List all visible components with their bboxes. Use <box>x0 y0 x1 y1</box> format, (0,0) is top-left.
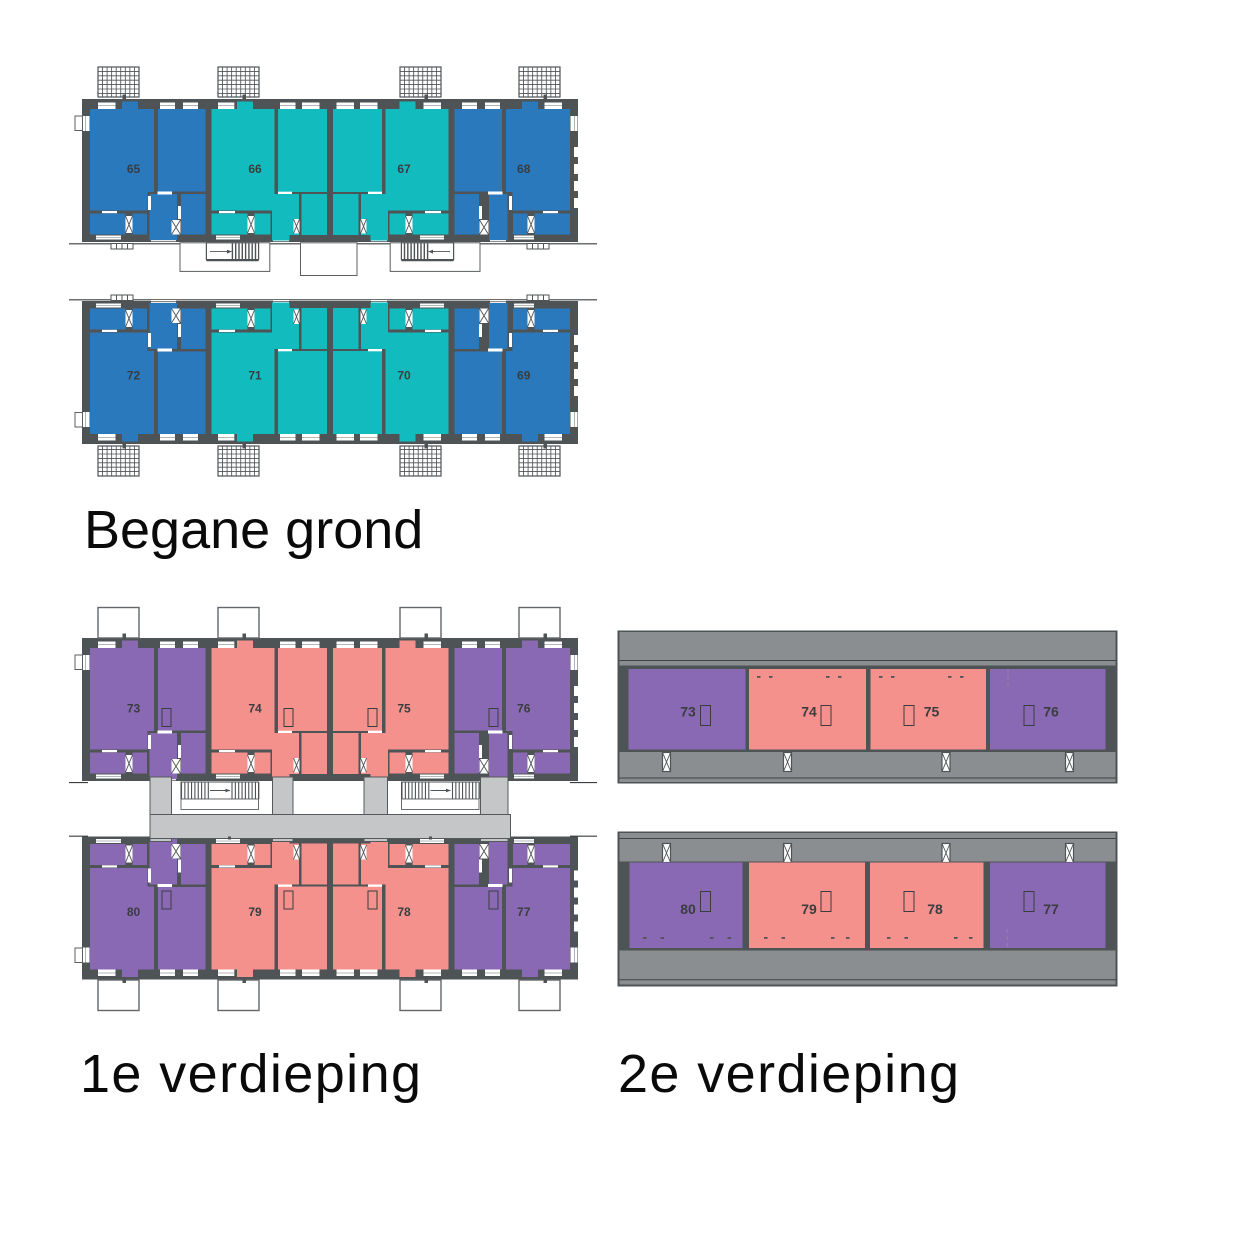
svg-text:72: 72 <box>127 369 141 383</box>
svg-text:1e verdieping: 1e verdieping <box>80 1044 422 1104</box>
svg-text:68: 68 <box>517 162 531 176</box>
svg-text:75: 75 <box>924 704 940 720</box>
svg-text:79: 79 <box>248 905 262 919</box>
svg-text:76: 76 <box>1043 704 1059 720</box>
svg-text:2e verdieping: 2e verdieping <box>618 1044 960 1104</box>
svg-text:75: 75 <box>397 702 411 716</box>
svg-text:74: 74 <box>248 702 262 716</box>
svg-text:74: 74 <box>801 704 817 720</box>
svg-text:69: 69 <box>517 369 531 383</box>
svg-text:Begane grond: Begane grond <box>84 500 423 560</box>
svg-text:78: 78 <box>927 901 943 917</box>
svg-text:73: 73 <box>127 702 141 716</box>
svg-text:77: 77 <box>517 905 531 919</box>
svg-text:67: 67 <box>397 162 411 176</box>
svg-text:78: 78 <box>397 905 411 919</box>
svg-text:65: 65 <box>127 162 141 176</box>
svg-text:76: 76 <box>517 702 531 716</box>
svg-text:80: 80 <box>680 901 696 917</box>
svg-text:66: 66 <box>248 162 262 176</box>
svg-text:79: 79 <box>801 901 817 917</box>
svg-text:77: 77 <box>1043 901 1059 917</box>
svg-text:80: 80 <box>127 905 141 919</box>
svg-text:73: 73 <box>680 704 696 720</box>
svg-text:70: 70 <box>397 369 411 383</box>
svg-text:71: 71 <box>248 369 262 383</box>
